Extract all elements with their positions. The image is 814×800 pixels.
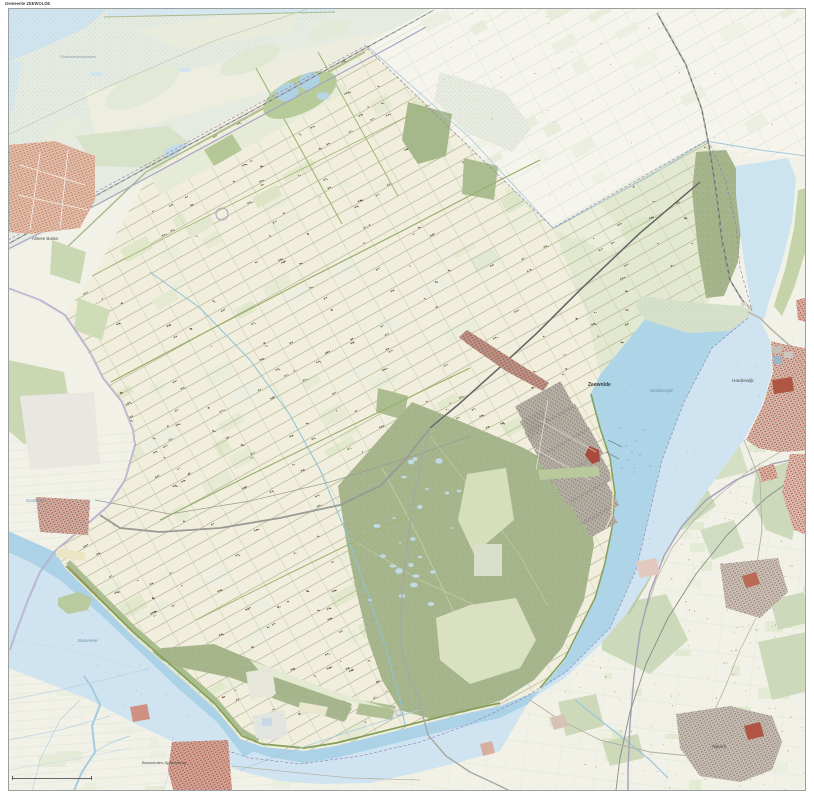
svg-text:Gooimeer: Gooimeer bbox=[26, 498, 45, 503]
svg-text:Nijkerk: Nijkerk bbox=[712, 744, 727, 749]
svg-text:Wolderwijd: Wolderwijd bbox=[650, 388, 673, 393]
svg-text:Bunschoten-Spakenburg: Bunschoten-Spakenburg bbox=[142, 760, 186, 765]
svg-text:Eemmeer: Eemmeer bbox=[78, 638, 98, 643]
svg-text:Zeewolde: Zeewolde bbox=[588, 382, 611, 388]
svg-text:Oostvaardersplassen: Oostvaardersplassen bbox=[60, 55, 96, 59]
svg-text:Almere Buiten: Almere Buiten bbox=[32, 236, 59, 241]
svg-text:Gemeente ZEEWOLDE: Gemeente ZEEWOLDE bbox=[5, 1, 50, 6]
svg-text:Harderwijk: Harderwijk bbox=[732, 378, 754, 383]
